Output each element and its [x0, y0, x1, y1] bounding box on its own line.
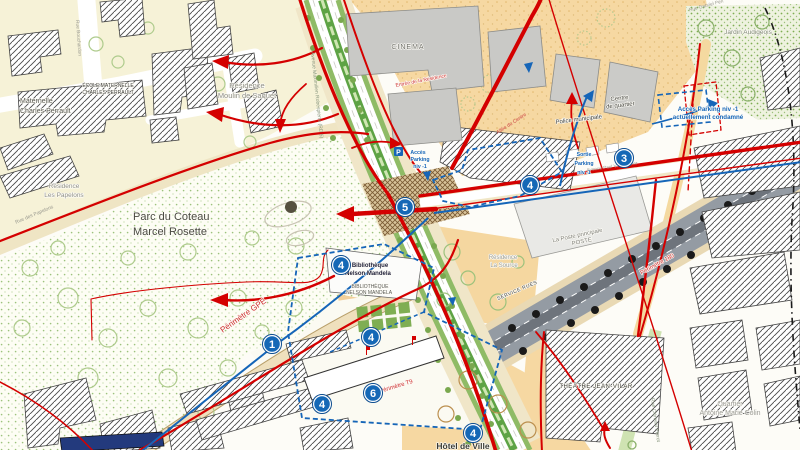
svg-text:Nelson Mandela: Nelson Mandela — [345, 271, 391, 277]
svg-text:CHARLES PERRAULT: CHARLES PERRAULT — [82, 90, 133, 96]
svg-text:Maternelle: Maternelle — [20, 98, 53, 105]
label-sortie-parking: Sortie Parking niv -1 — [574, 152, 593, 176]
map-marker-6[interactable]: 6 — [364, 384, 383, 403]
label-cinema: CINEMA — [391, 44, 424, 51]
svg-text:1: 1 — [269, 339, 275, 351]
svg-text:Parc du Coteau: Parc du Coteau — [133, 211, 209, 223]
svg-text:3: 3 — [621, 153, 627, 165]
label-theatre: THÉÂTRE JEAN-VILAR — [559, 383, 633, 390]
map-canvas: P ÉCOLE MATERNELLE CHARLES PERRAULT Mate… — [0, 0, 800, 450]
svg-text:Charles Perrault: Charles Perrault — [20, 108, 71, 115]
svg-text:4: 4 — [319, 399, 326, 411]
map-marker-4d[interactable]: 4 — [313, 395, 332, 414]
svg-text:actuellement condamné: actuellement condamné — [673, 114, 744, 121]
svg-text:P: P — [396, 150, 401, 157]
svg-text:BIBLIOTHÈQUE: BIBLIOTHÈQUE — [352, 283, 390, 290]
svg-text:6: 6 — [370, 388, 376, 400]
map-marker-4e[interactable]: 4 — [464, 424, 483, 443]
svg-text:Sortie: Sortie — [577, 152, 592, 158]
parking-icon: P — [394, 147, 403, 157]
svg-text:ÉCOLE MATERNELLE: ÉCOLE MATERNELLE — [82, 82, 134, 89]
svg-text:Accès: Accès — [410, 150, 425, 156]
svg-text:Antoine Marie Colin: Antoine Marie Colin — [699, 410, 760, 417]
label-hotel-de-ville: Hôtel de Ville — [436, 441, 489, 450]
map-marker-1[interactable]: 1 — [263, 335, 282, 354]
svg-text:NELSON MANDELA: NELSON MANDELA — [346, 290, 393, 296]
svg-text:4: 4 — [470, 428, 477, 440]
map-marker-3[interactable]: 3 — [615, 149, 634, 168]
svg-text:La Source: La Source — [490, 263, 518, 269]
svg-text:5: 5 — [402, 202, 408, 214]
label-jardin-audigeois: Jardin Audigeois — [724, 29, 772, 36]
svg-text:Bibliothèque: Bibliothèque — [352, 263, 389, 269]
map-marker-4c[interactable]: 4 — [362, 328, 381, 347]
map-marker-4b[interactable]: 4 — [332, 256, 351, 275]
svg-text:Résidence: Résidence — [229, 81, 264, 90]
svg-text:4: 4 — [338, 260, 345, 272]
label-acces-parking-condamne: Accès Parking niv -1 actuellement condam… — [673, 106, 744, 121]
label-bibliotheque-caps: BIBLIOTHÈQUE NELSON MANDELA — [346, 283, 393, 296]
svg-text:Résidence: Résidence — [489, 255, 518, 261]
svg-text:Parking: Parking — [410, 157, 429, 163]
svg-text:Les Papelons: Les Papelons — [44, 192, 84, 199]
svg-text:Marcel Rosette: Marcel Rosette — [133, 226, 207, 238]
svg-text:Accès Parking niv -1: Accès Parking niv -1 — [678, 106, 739, 113]
svg-text:4: 4 — [527, 180, 534, 192]
map-marker-5[interactable]: 5 — [396, 198, 415, 217]
svg-text:niv -1: niv -1 — [413, 164, 427, 170]
svg-text:Résidence: Résidence — [49, 183, 80, 190]
svg-text:Moulin de Saquet: Moulin de Saquet — [218, 91, 277, 100]
svg-text:4: 4 — [368, 332, 375, 344]
map-marker-4a[interactable]: 4 — [521, 176, 540, 195]
svg-text:Quartier: Quartier — [717, 401, 743, 408]
